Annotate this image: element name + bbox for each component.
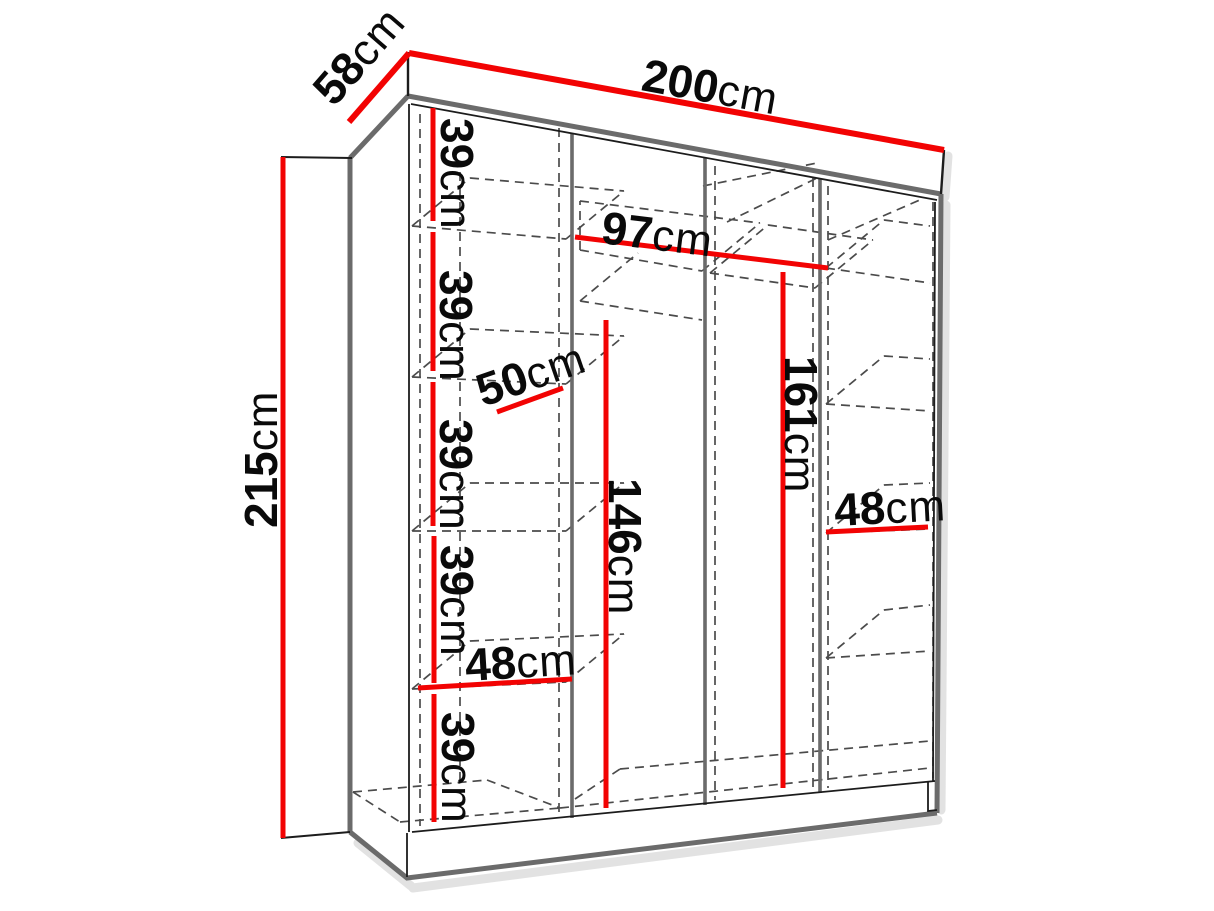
wardrobe-dimension-diagram: 58cm 200cm 215cm 39cm 39cm 50cm 39cm 39c… [0,0,1214,911]
dim-label-gap5: 39cm [432,712,484,824]
shadow-slab-right [945,156,948,197]
dim-label-gap1: 39cm [431,118,483,230]
dim-label-right-width: 48cm [833,478,947,536]
dim-label-total-depth: 58cm [302,0,415,115]
dim-label-left-width: 48cm [463,632,578,691]
dim-label-total-width: 200cm [638,49,782,125]
dim-label-gap3: 39cm [430,419,482,531]
dim-label-middle-left-height: 146cm [599,478,651,615]
dimension-lines [283,53,944,838]
dim-label-middle-right-height: 161cm [775,356,827,493]
dimension-labels: 58cm 200cm 215cm 39cm 39cm 50cm 39cm 39c… [235,0,947,824]
shadow-bottom [358,820,938,888]
dashed-shelves-right-column [826,199,930,658]
height-dim-ticks [281,157,352,838]
dim-label-total-height: 215cm [235,391,287,528]
diagram-canvas: 58cm 200cm 215cm 39cm 39cm 50cm 39cm 39c… [0,0,1214,911]
